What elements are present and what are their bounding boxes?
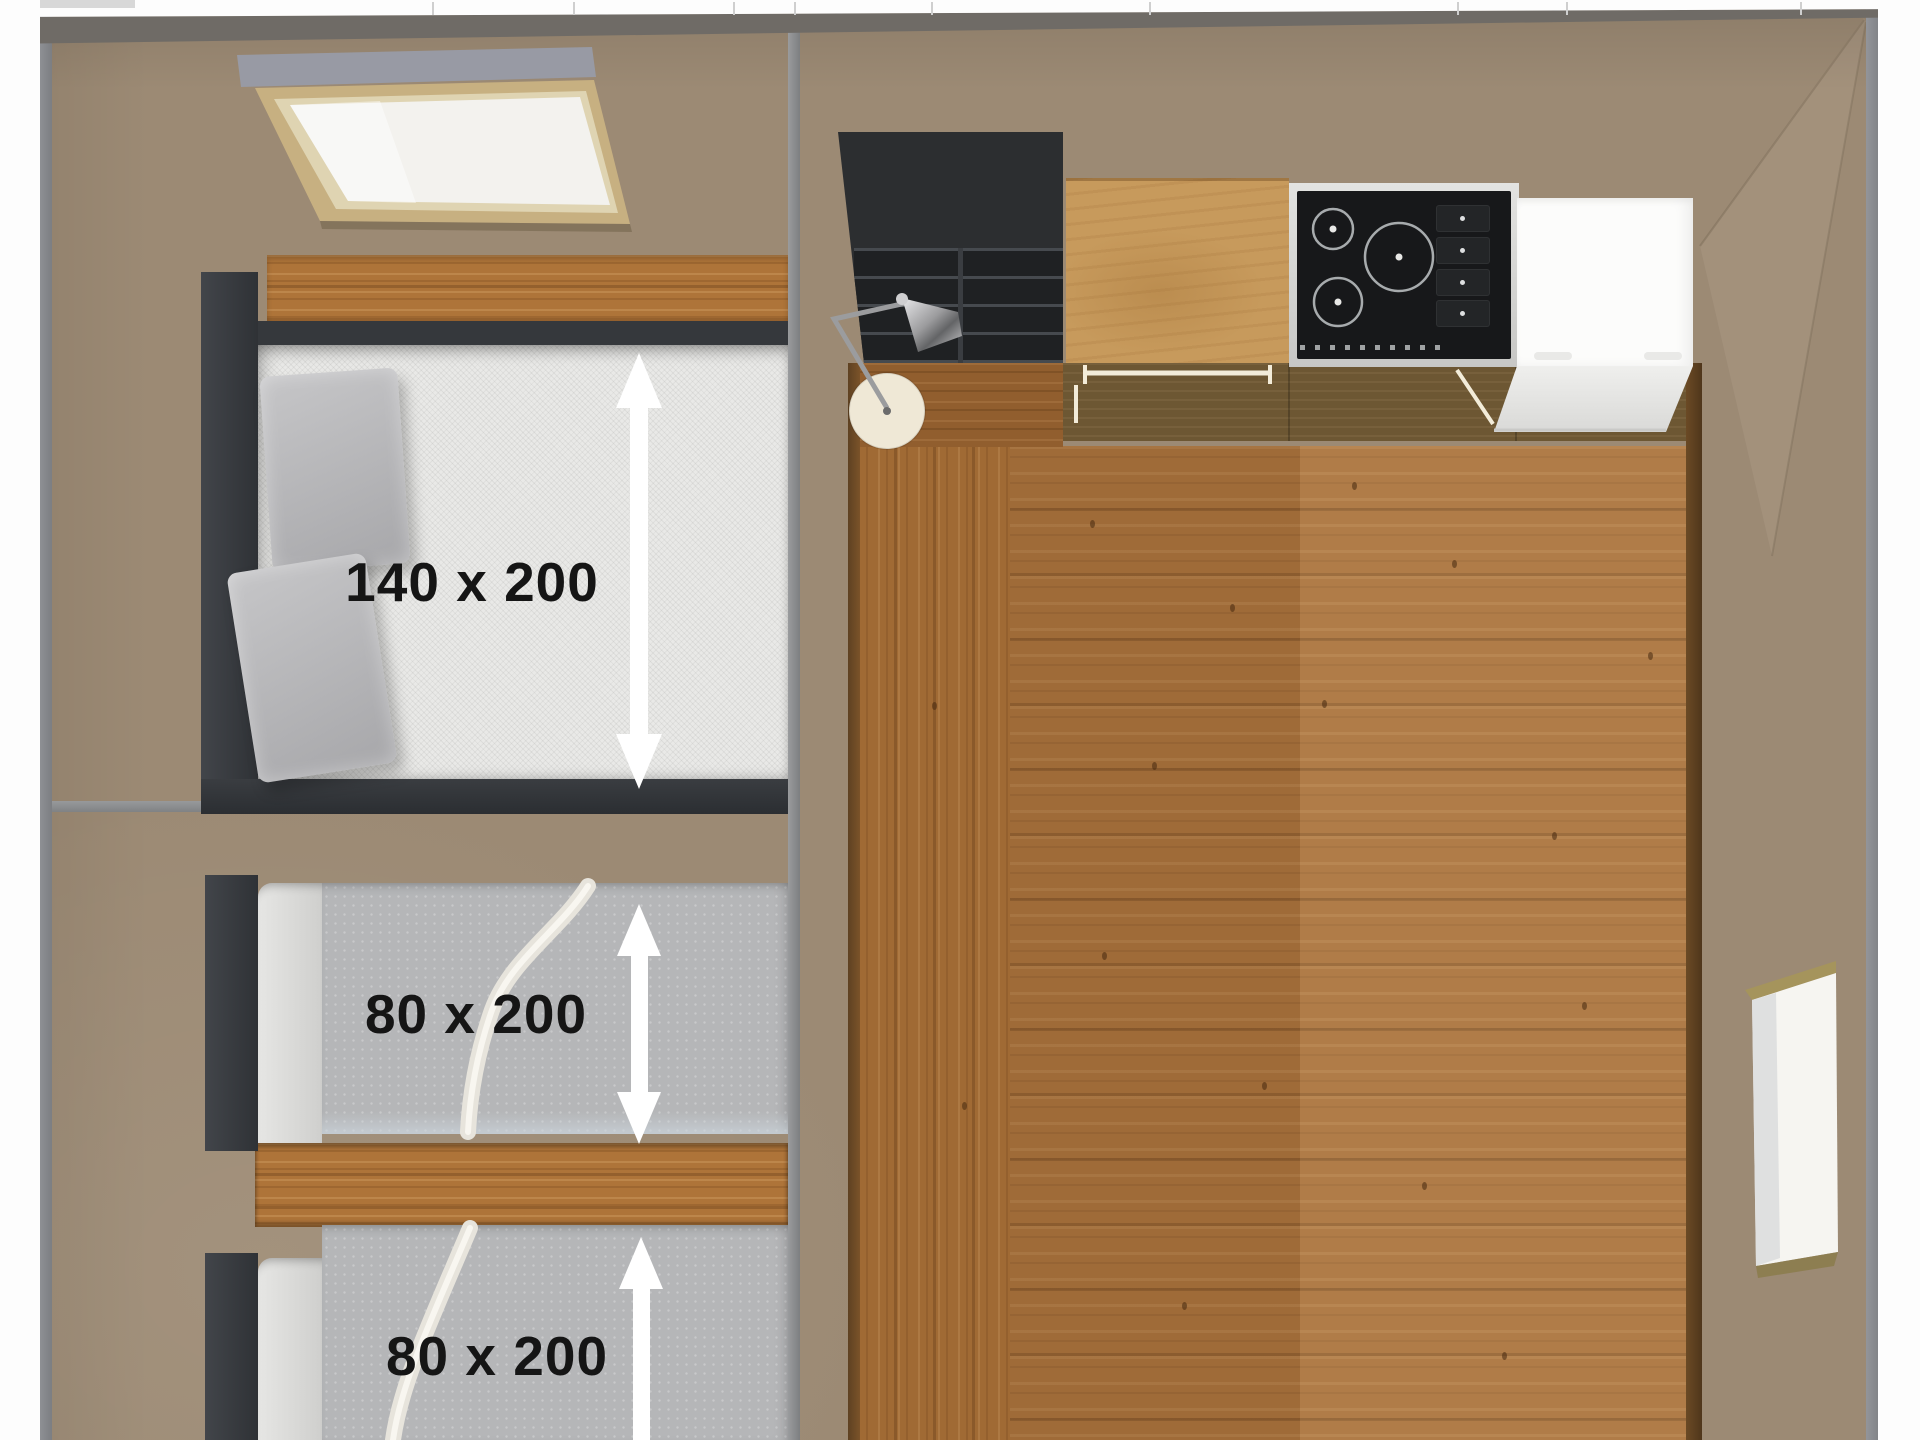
appliance-vent <box>1644 352 1682 360</box>
page-margin-right <box>1878 0 1920 1440</box>
white-appliance <box>1517 198 1693 366</box>
wood-knot <box>932 702 937 710</box>
wood-knot <box>1452 560 1457 568</box>
double-bed-frame-foot <box>201 779 788 814</box>
wall-tick <box>733 2 735 15</box>
wall-tick <box>931 2 933 15</box>
single-bed-2-frame <box>205 1253 258 1440</box>
wood-knot <box>1502 1352 1507 1360</box>
skylight-top-bar <box>237 47 596 87</box>
shelf-unit <box>838 132 1063 363</box>
shelf-compartments <box>854 248 1063 363</box>
wood-knot <box>1262 1082 1267 1090</box>
wall-tick <box>1457 2 1459 15</box>
single-bed-2-mattress-edge <box>258 1258 322 1440</box>
outer-wall-left <box>40 14 52 1440</box>
wall-tick <box>794 2 796 15</box>
wood-knot <box>1182 1302 1187 1310</box>
double-bed-frame-left <box>201 272 258 814</box>
cooktop-knob <box>1436 300 1490 327</box>
wood-knot <box>1090 520 1095 528</box>
headboard-panel <box>267 255 788 330</box>
single-bed-1-blanket-edge <box>322 1112 788 1134</box>
wood-knot <box>1648 652 1653 660</box>
desk-surface <box>848 363 1063 447</box>
floor-edge-left <box>848 363 860 1440</box>
room-divider-wall <box>788 17 800 1440</box>
dimension-label-single-bed-1: 80 x 200 <box>344 982 608 1046</box>
wood-knot <box>1552 832 1557 840</box>
pillow <box>259 367 410 572</box>
wood-knot <box>1152 762 1157 770</box>
kitchen-counter <box>1066 178 1289 363</box>
double-bed-frame-top <box>258 321 788 345</box>
single-bed-1-frame <box>205 875 258 1151</box>
wall-tick <box>1149 2 1151 15</box>
kitchen-cabinet-front <box>1063 363 1700 441</box>
wood-knot <box>962 1102 967 1110</box>
dimension-label-double-bed: 140 x 200 <box>322 550 622 614</box>
floor-strip-between-beds <box>255 1143 788 1227</box>
floor-plan-canvas: 140 x 200 80 x 200 80 x 200 <box>0 0 1920 1440</box>
cooktop-knob <box>1436 205 1490 232</box>
dimension-label-single-bed-2: 80 x 200 <box>360 1324 634 1388</box>
floor-edge-right <box>1686 363 1702 1440</box>
cooktop-controls <box>1300 345 1450 350</box>
wood-knot <box>1102 952 1107 960</box>
cooktop-knob <box>1436 237 1490 264</box>
outer-wall-right <box>1866 9 1878 1440</box>
wall-tick <box>1566 2 1568 15</box>
skylight-window <box>190 35 670 245</box>
appliance-vent <box>1534 352 1572 360</box>
single-bed-1-mattress-edge <box>258 883 322 1143</box>
wood-knot <box>1322 700 1327 708</box>
wall-edge-mark <box>40 0 135 8</box>
wood-knot <box>1230 604 1235 612</box>
wood-knot <box>1422 1182 1427 1190</box>
wood-floor-main <box>1010 446 1686 1440</box>
wood-knot <box>1352 482 1357 490</box>
wall-tick <box>573 2 575 15</box>
wood-floor-walkway <box>858 446 1010 1440</box>
wall-tick <box>1800 2 1802 15</box>
cooktop-knob <box>1436 269 1490 296</box>
wood-knot <box>1582 1002 1587 1010</box>
page-margin-left <box>0 0 40 1440</box>
wall-tick <box>432 2 434 15</box>
